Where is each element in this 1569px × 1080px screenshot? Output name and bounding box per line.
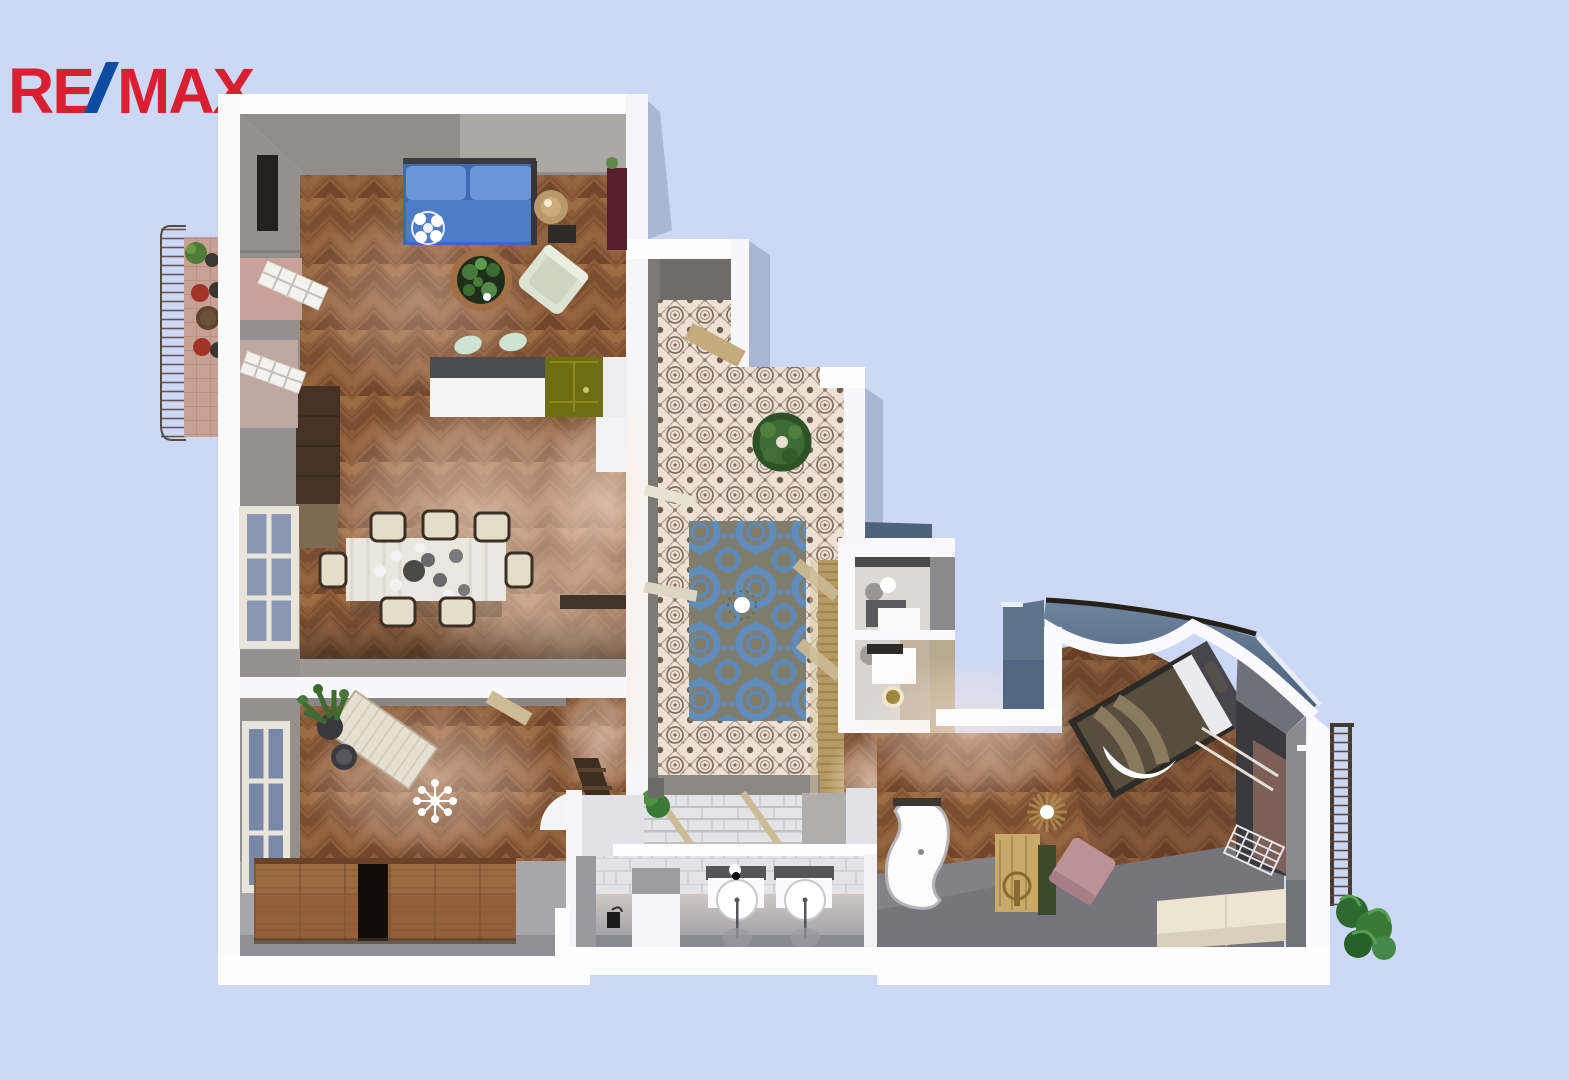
svg-text:RE: RE [8,55,93,127]
